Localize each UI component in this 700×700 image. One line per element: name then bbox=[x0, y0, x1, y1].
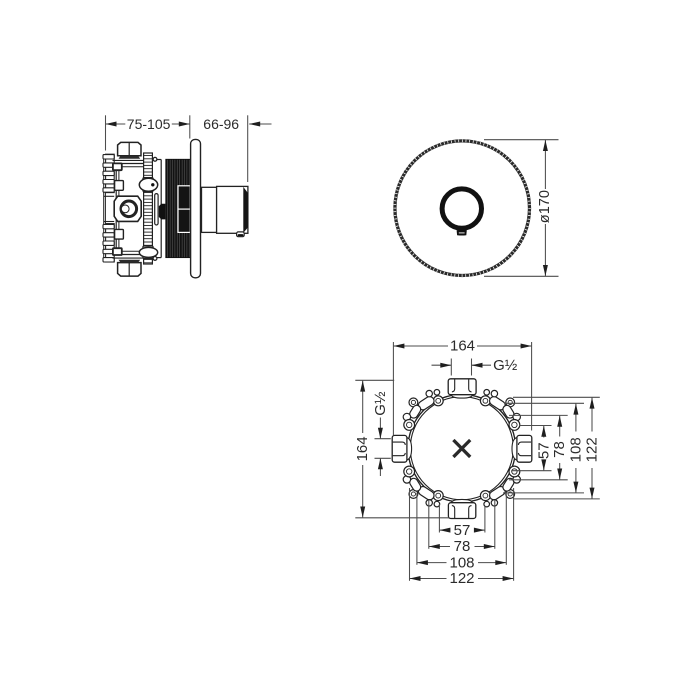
svg-text:122: 122 bbox=[449, 570, 474, 587]
svg-text:ø170: ø170 bbox=[537, 190, 553, 223]
svg-text:122: 122 bbox=[584, 437, 601, 462]
svg-text:164: 164 bbox=[354, 436, 371, 461]
svg-text:57: 57 bbox=[535, 442, 552, 459]
svg-text:57: 57 bbox=[454, 522, 471, 539]
svg-text:78: 78 bbox=[454, 538, 471, 555]
svg-text:108: 108 bbox=[449, 554, 474, 571]
svg-text:G½: G½ bbox=[372, 391, 389, 416]
svg-text:164: 164 bbox=[450, 338, 475, 355]
svg-text:66-96: 66-96 bbox=[203, 116, 239, 132]
svg-text:75-105: 75-105 bbox=[127, 116, 171, 132]
svg-text:G½: G½ bbox=[493, 357, 518, 374]
svg-text:108: 108 bbox=[567, 437, 584, 462]
svg-text:78: 78 bbox=[551, 441, 568, 458]
